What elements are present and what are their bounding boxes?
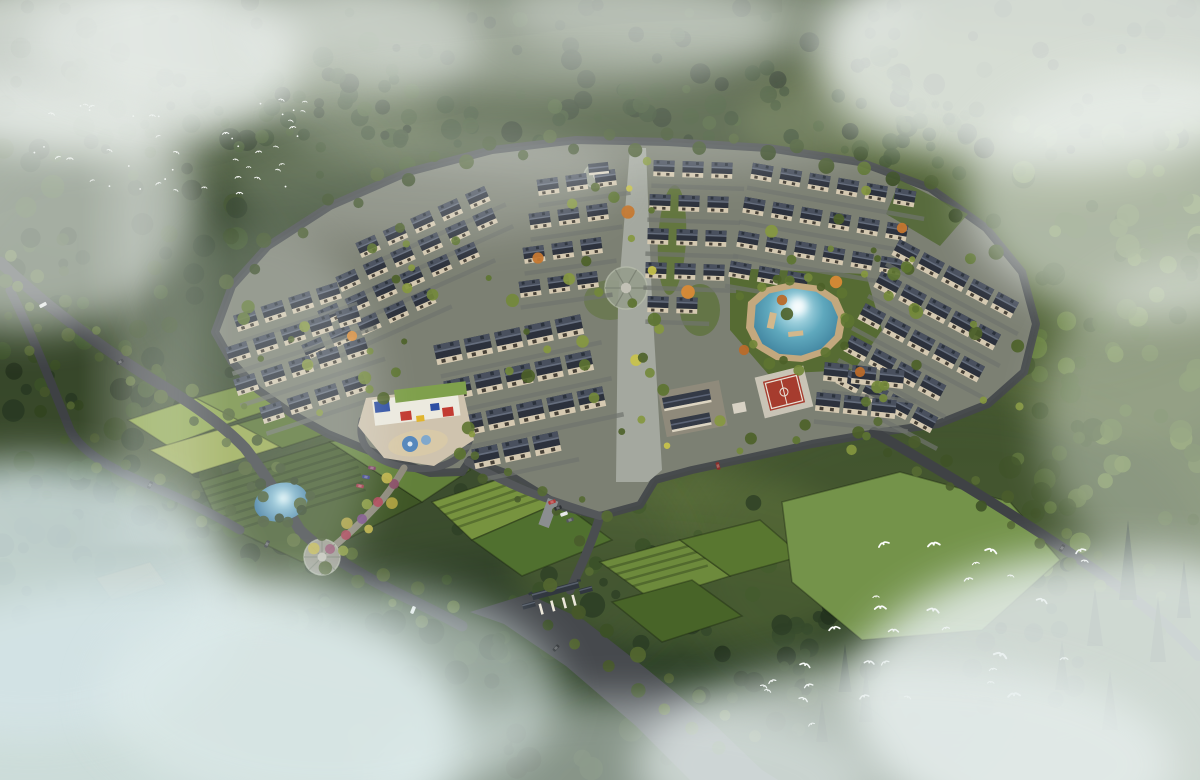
flowering-pergola — [373, 497, 383, 507]
house — [703, 264, 724, 281]
tree — [980, 397, 987, 404]
tree — [563, 273, 575, 285]
tree — [924, 175, 938, 189]
house — [580, 237, 603, 256]
tree — [820, 347, 830, 357]
aerial-rendering — [0, 0, 1200, 780]
tree — [367, 243, 377, 253]
tree — [949, 209, 963, 223]
tree — [589, 393, 600, 404]
house — [647, 228, 668, 245]
forest-canopy — [2, 399, 25, 422]
autumn-tree — [897, 223, 907, 233]
bird — [237, 145, 239, 147]
tree — [765, 225, 778, 238]
tree — [840, 341, 849, 350]
tree — [469, 431, 475, 437]
tree — [883, 448, 892, 457]
tree — [1001, 490, 1014, 503]
tree — [40, 387, 50, 397]
tree — [901, 261, 913, 273]
tree — [976, 500, 987, 511]
tree — [648, 207, 655, 214]
tree — [861, 186, 871, 196]
tree — [523, 328, 529, 334]
tree — [909, 256, 915, 262]
tree — [391, 367, 401, 377]
tree — [403, 240, 410, 247]
tree — [883, 291, 893, 301]
tree — [648, 266, 657, 275]
tree — [627, 298, 637, 308]
tree — [377, 568, 391, 582]
tree — [1007, 521, 1015, 529]
forest-canopy — [442, 575, 452, 585]
tree — [1015, 402, 1023, 410]
tree — [585, 567, 594, 576]
house — [823, 362, 849, 383]
tree — [745, 432, 757, 444]
tree — [60, 436, 69, 445]
tree — [579, 496, 586, 503]
forest-canopy — [1031, 482, 1051, 502]
tree — [749, 340, 758, 349]
tree — [67, 401, 75, 409]
tree — [827, 246, 833, 252]
tree — [971, 476, 980, 485]
tree — [386, 497, 398, 509]
forest-canopy — [745, 587, 760, 602]
circular-plaza — [605, 267, 647, 309]
forest-canopy — [952, 166, 966, 180]
forest-canopy — [771, 614, 792, 635]
tree — [600, 624, 614, 638]
house — [676, 297, 697, 314]
tree — [887, 267, 900, 280]
tree — [645, 368, 655, 378]
tree — [628, 235, 635, 242]
tree — [736, 292, 744, 300]
tree — [477, 474, 487, 484]
autumn-tree — [621, 205, 634, 218]
tree — [514, 496, 521, 503]
tree — [736, 447, 743, 454]
tree — [601, 511, 612, 522]
tree — [637, 416, 645, 424]
tree — [763, 358, 775, 370]
tree — [631, 683, 646, 698]
house — [647, 296, 668, 313]
autumn-tree — [532, 252, 543, 263]
tree — [543, 620, 554, 631]
tree — [857, 161, 871, 175]
tree — [965, 253, 976, 264]
forest-canopy — [611, 590, 620, 599]
forest-canopy — [746, 495, 762, 511]
forest-canopy — [1044, 501, 1056, 513]
tree — [873, 417, 882, 426]
tree — [506, 294, 519, 307]
forest-canopy — [234, 141, 245, 152]
tree — [381, 473, 392, 484]
tree — [861, 397, 871, 407]
tree — [648, 313, 661, 326]
tree — [841, 314, 855, 328]
forest-canopy — [799, 648, 810, 659]
tree — [638, 353, 648, 363]
tree — [799, 419, 810, 430]
tree — [714, 415, 725, 426]
tree — [61, 328, 75, 342]
tree — [862, 432, 871, 441]
tree — [1061, 528, 1072, 539]
forest-canopy — [883, 148, 900, 165]
forest-canopy — [5, 363, 22, 380]
tree — [664, 673, 674, 683]
tree — [50, 360, 61, 371]
tree — [940, 454, 953, 467]
tree — [886, 172, 901, 187]
tree — [576, 335, 589, 348]
tree — [571, 605, 585, 619]
house — [705, 230, 726, 247]
tree — [879, 394, 887, 402]
tree — [792, 436, 800, 444]
tree — [24, 346, 34, 356]
autumn-tree — [777, 295, 787, 305]
tree — [785, 276, 795, 286]
tree — [970, 321, 977, 328]
forest-canopy — [999, 456, 1022, 479]
house — [815, 392, 841, 413]
tree — [817, 283, 826, 292]
forest-canopy — [21, 384, 32, 395]
tree — [837, 288, 848, 299]
autumn-tree — [681, 285, 695, 299]
fog-patch — [140, 220, 380, 620]
forest-canopy — [801, 623, 813, 635]
tree — [781, 308, 793, 320]
tree — [908, 436, 920, 448]
tree — [912, 466, 922, 476]
tree — [874, 255, 881, 262]
tree — [846, 445, 856, 455]
tree — [505, 367, 514, 376]
tree — [969, 327, 983, 341]
forest-canopy — [779, 661, 789, 671]
tree — [401, 338, 407, 344]
tree — [911, 360, 921, 370]
tree — [664, 442, 670, 448]
house — [551, 241, 574, 260]
tree — [1034, 538, 1045, 549]
tree — [537, 486, 547, 496]
tree — [657, 384, 669, 396]
tree — [581, 256, 591, 266]
tree — [392, 275, 401, 284]
tree — [569, 639, 580, 650]
tree — [946, 482, 955, 491]
tree — [833, 214, 844, 225]
tree — [408, 264, 415, 271]
tree — [804, 273, 813, 282]
forest-canopy — [599, 578, 608, 587]
forest-canopy — [34, 405, 47, 418]
tree — [579, 359, 590, 370]
tree — [543, 345, 551, 353]
tree — [1011, 340, 1024, 353]
house — [678, 195, 699, 212]
tree — [471, 451, 480, 460]
autumn-tree — [855, 367, 865, 377]
tree — [757, 282, 766, 291]
tree — [364, 525, 373, 534]
aerial-rendering-stage — [0, 0, 1200, 780]
tree — [454, 448, 466, 460]
autumn-tree — [739, 345, 749, 355]
tree — [1031, 508, 1041, 518]
forest-canopy — [255, 130, 269, 144]
house — [674, 263, 695, 280]
tree — [793, 365, 804, 376]
forest-canopy — [714, 646, 730, 662]
tree — [630, 647, 646, 663]
tree — [912, 305, 919, 312]
house — [676, 229, 697, 246]
forest-canopy — [932, 156, 944, 168]
house — [519, 279, 542, 298]
tree — [574, 535, 585, 546]
tree — [603, 660, 615, 672]
tree — [521, 369, 535, 383]
tree — [861, 270, 868, 277]
tree — [773, 275, 782, 284]
tree — [787, 255, 797, 265]
tree — [871, 381, 884, 394]
tree — [504, 468, 512, 476]
tree — [871, 247, 877, 253]
tree — [402, 283, 412, 293]
tree — [618, 428, 625, 435]
tree — [427, 289, 439, 301]
tree — [486, 275, 492, 281]
tree — [779, 356, 788, 365]
house — [707, 196, 728, 213]
tree — [626, 185, 632, 191]
fog-patch — [220, 120, 620, 240]
tree — [594, 288, 603, 297]
autumn-tree — [830, 276, 842, 288]
tree — [543, 578, 557, 592]
house — [576, 271, 599, 290]
